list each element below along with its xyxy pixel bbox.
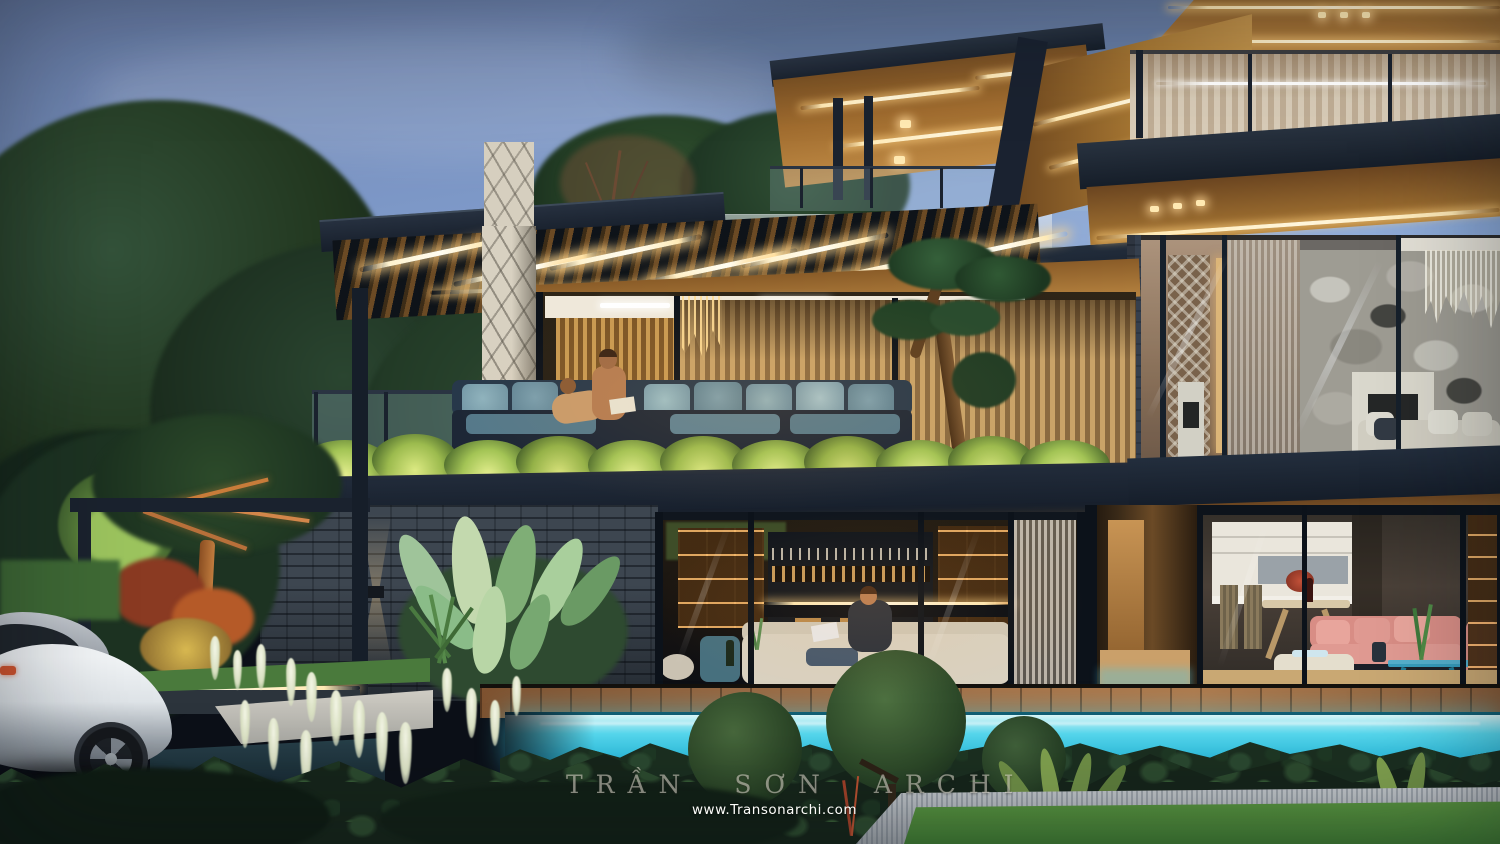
- ceiling-light: [894, 156, 905, 164]
- distant-lawn: [0, 560, 120, 620]
- flower-spike: [399, 722, 412, 784]
- shelving-warm: [1468, 515, 1497, 690]
- coffee-table-glass: [1388, 660, 1470, 667]
- bonsai-foliage: [955, 256, 1051, 302]
- window-mullion: [1460, 505, 1466, 697]
- watermark-website: www.Transonarchi.com: [692, 802, 857, 818]
- flower-spike: [330, 690, 342, 746]
- car-wheel-hub: [105, 753, 117, 765]
- window-mullion: [1302, 505, 1307, 697]
- glass-blue-tint: [1135, 235, 1500, 470]
- railing-post: [1248, 54, 1252, 138]
- architectural-render: TRẦN SƠN ARCHI www.Transonarchi.com: [0, 0, 1500, 844]
- railing-post: [800, 168, 803, 208]
- pine-canopy: [92, 414, 342, 554]
- wine-bottle: [1306, 578, 1313, 602]
- railing-post: [1136, 50, 1143, 138]
- watermark-studio-name: TRẦN SƠN ARCHI: [566, 770, 1027, 799]
- flower-spike: [490, 700, 500, 746]
- sofa-cushion: [1316, 620, 1350, 646]
- pergola-beam: [70, 498, 370, 512]
- ambient-glow: [450, 290, 1070, 510]
- flower-spike: [466, 688, 477, 738]
- wall-sconce: [368, 586, 384, 598]
- kitchen-cabinet-lines: [1212, 552, 1352, 554]
- sofa-cushion: [1354, 618, 1390, 644]
- ceiling-light: [1362, 12, 1370, 18]
- ceiling-light: [1318, 12, 1326, 18]
- led-strip: [1156, 82, 1486, 85]
- ceiling-light: [1196, 200, 1205, 206]
- car-taillight: [0, 666, 16, 675]
- flower-spike: [442, 668, 452, 712]
- railing-post: [870, 168, 873, 208]
- railing-post: [940, 168, 943, 208]
- wine-cooler: [1372, 642, 1386, 662]
- ceiling-light: [1340, 12, 1348, 18]
- ambient-glow: [650, 510, 1090, 700]
- ceiling-light: [1150, 206, 1159, 212]
- pergola-post-tall: [352, 288, 368, 698]
- flower-spike: [376, 712, 388, 772]
- tall-chair: [1244, 585, 1262, 649]
- ceiling-light: [900, 120, 911, 128]
- led-strip: [1168, 6, 1500, 9]
- stone-pillar-top: [484, 142, 534, 238]
- ceiling-light: [1173, 203, 1182, 209]
- tray: [1292, 650, 1328, 657]
- kitchen-cabinet-lines: [1212, 536, 1352, 538]
